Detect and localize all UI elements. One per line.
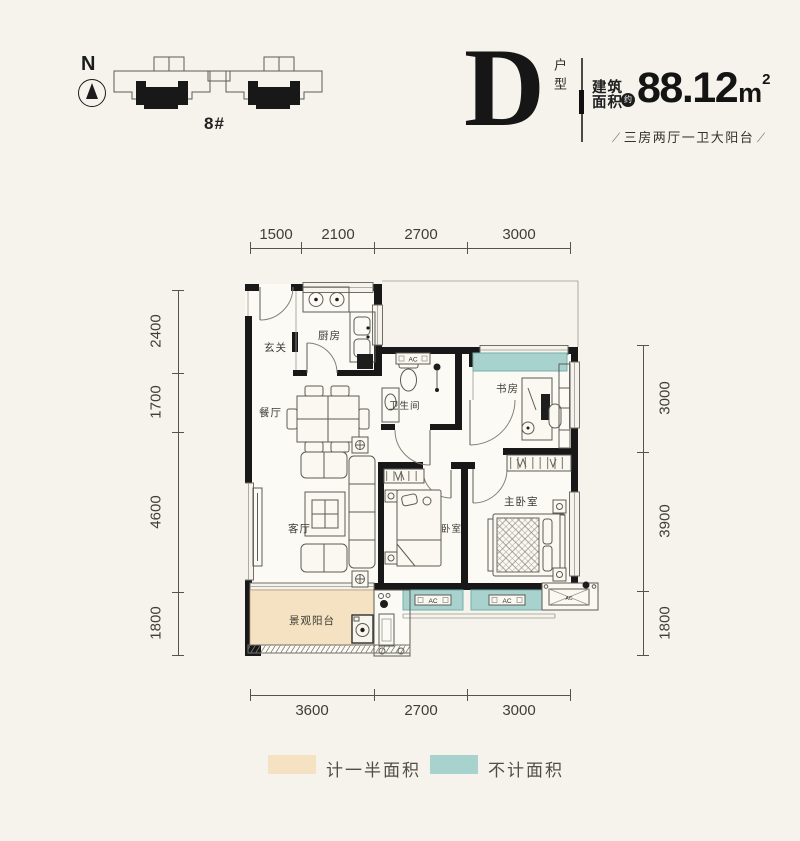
dim-label: 1500 bbox=[259, 226, 292, 243]
layout-summary: /三房两厅一卫大阳台/ bbox=[584, 127, 794, 146]
room-label-bedroom: 卧室 bbox=[441, 521, 462, 535]
building-number: 8# bbox=[204, 114, 225, 134]
legend-label-half-area: 计一半面积 bbox=[326, 756, 421, 781]
dim-tick bbox=[467, 689, 468, 701]
room-label-living: 客厅 bbox=[288, 521, 311, 536]
dim-tick bbox=[250, 689, 251, 701]
dim-label: 3000 bbox=[502, 702, 535, 719]
fridge-icon bbox=[357, 354, 373, 369]
ac-label: AC bbox=[428, 598, 437, 605]
dim-label: 1700 bbox=[148, 385, 165, 418]
dim-tick bbox=[570, 689, 571, 701]
dim-tick bbox=[467, 242, 468, 254]
area-unit-superscript: 2 bbox=[762, 71, 770, 88]
room-label-bathroom: 卫生间 bbox=[389, 398, 421, 412]
ac-label: AC bbox=[502, 598, 511, 605]
dim-tick bbox=[570, 242, 571, 254]
wardrobe-study-icon bbox=[507, 455, 571, 471]
north-arrow-icon bbox=[78, 79, 106, 107]
room-label-kitchen: 厨房 bbox=[318, 328, 341, 343]
ac-label: AC bbox=[408, 357, 417, 364]
dim-label: 2700 bbox=[404, 702, 437, 719]
nightstand-icon bbox=[385, 552, 397, 564]
dim-label: 1800 bbox=[657, 606, 674, 639]
dim-line-top bbox=[250, 248, 570, 249]
dim-line-right bbox=[643, 345, 644, 655]
ac-marker-2: AC bbox=[489, 595, 525, 605]
dim-line-left bbox=[178, 290, 179, 655]
dim-label: 1800 bbox=[148, 606, 165, 639]
unit-letter: D bbox=[464, 38, 545, 139]
room-label-study: 书房 bbox=[496, 381, 519, 396]
dim-tick bbox=[374, 242, 375, 254]
dim-tick bbox=[637, 345, 649, 346]
highlighted-unit bbox=[248, 81, 300, 109]
room-label-entry: 玄关 bbox=[264, 340, 287, 355]
dim-label: 3000 bbox=[502, 226, 535, 243]
study-bay-window-area bbox=[473, 353, 567, 371]
kitchen-side-window-icon bbox=[373, 305, 383, 345]
area-caption: 建筑 面积 bbox=[592, 81, 623, 111]
room-label-master: 主卧室 bbox=[504, 494, 539, 509]
dim-label: 2400 bbox=[148, 314, 165, 347]
area-unit: m bbox=[738, 78, 762, 109]
floor-plan: AC AC AC AC 玄关 厨房 餐厅 bbox=[245, 278, 600, 663]
outdoor-ac-unit-icon: AC bbox=[542, 582, 598, 611]
dim-label: 3000 bbox=[657, 381, 674, 414]
slash-decoration: / bbox=[757, 130, 767, 145]
legend-swatch-excluded-area bbox=[430, 755, 478, 774]
master-bed-icon bbox=[493, 514, 565, 576]
side-table-icon bbox=[352, 571, 368, 587]
dim-tick bbox=[637, 655, 649, 656]
unit-type-label: 户型 bbox=[550, 58, 569, 96]
legend-label-excluded-area: 不计面积 bbox=[488, 756, 564, 781]
dim-tick bbox=[637, 452, 649, 453]
key-plan-connector bbox=[208, 71, 230, 81]
ac-label: AC bbox=[566, 596, 573, 602]
coffee-table-icon bbox=[305, 492, 345, 536]
area-number: 88.12 bbox=[637, 64, 737, 113]
area-value: 88.12m2 bbox=[637, 64, 770, 113]
dim-tick bbox=[172, 290, 184, 291]
area-caption-line1: 建筑 bbox=[592, 81, 623, 96]
washing-machine-icon bbox=[352, 615, 373, 643]
dim-label: 2100 bbox=[321, 226, 354, 243]
wardrobe-bedroom-icon bbox=[384, 469, 424, 483]
legend-swatch-half-area bbox=[268, 755, 316, 774]
side-table-icon bbox=[352, 437, 368, 453]
master-window-icon bbox=[570, 492, 580, 576]
void-outline bbox=[382, 281, 578, 347]
area-caption-line2: 面积 bbox=[592, 96, 623, 111]
nightstand-icon bbox=[553, 500, 566, 513]
dim-label: 3600 bbox=[295, 702, 328, 719]
ac-marker-1: AC bbox=[415, 595, 451, 605]
room-label-balcony: 景观阳台 bbox=[289, 613, 335, 628]
ac-platform-sill bbox=[403, 614, 555, 618]
key-plan-left-wing bbox=[114, 57, 210, 109]
balcony-railing-icon bbox=[248, 645, 410, 653]
dim-label: 4600 bbox=[148, 495, 165, 528]
floor-plan-drawing: AC AC AC AC bbox=[245, 278, 600, 663]
bed-icon bbox=[397, 490, 441, 566]
slash-decoration: / bbox=[611, 130, 621, 145]
north-label: N bbox=[81, 53, 95, 76]
study-right-window-icon bbox=[570, 362, 580, 428]
dim-tick bbox=[374, 689, 375, 701]
approx-badge: 约 bbox=[621, 93, 635, 107]
dim-label: 3900 bbox=[657, 504, 674, 537]
dim-tick bbox=[172, 592, 184, 593]
dim-label: 2700 bbox=[404, 226, 437, 243]
site-key-plan bbox=[112, 56, 332, 114]
dim-line-bottom bbox=[250, 695, 570, 696]
title-divider-accent bbox=[579, 90, 584, 114]
dim-tick bbox=[172, 655, 184, 656]
dim-tick bbox=[637, 591, 649, 592]
nightstand-icon bbox=[553, 568, 566, 581]
dim-tick bbox=[172, 373, 184, 374]
dim-tick bbox=[250, 242, 251, 254]
living-window-icon bbox=[245, 483, 254, 580]
key-plan-right-wing bbox=[226, 57, 322, 109]
compass-needle-icon bbox=[86, 83, 98, 99]
ac-marker-top: AC bbox=[396, 353, 430, 364]
room-label-dining: 餐厅 bbox=[259, 405, 282, 420]
desk-icon bbox=[522, 378, 552, 440]
dim-tick bbox=[172, 432, 184, 433]
layout-summary-text: 三房两厅一卫大阳台 bbox=[624, 130, 755, 145]
floorplan-page: N 8# D 户型 建筑 面积 约 88.12m2 /三房两厅一卫大阳台/ bbox=[0, 0, 800, 841]
highlighted-unit bbox=[136, 81, 188, 109]
nightstand-icon bbox=[385, 490, 397, 502]
dim-tick bbox=[301, 242, 302, 254]
